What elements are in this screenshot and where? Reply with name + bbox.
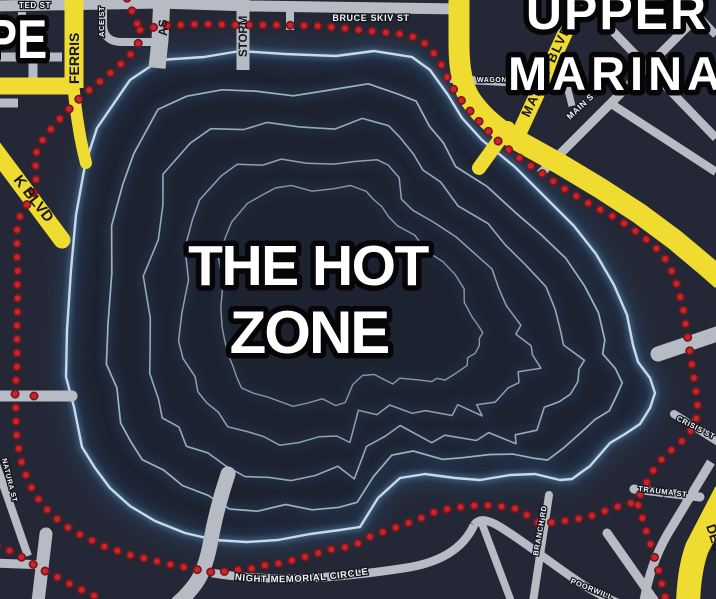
svg-text:MARINA: MARINA [508, 47, 716, 100]
svg-text:BRUCE SKIV ST: BRUCE SKIV ST [332, 13, 409, 23]
svg-text:ACE ST: ACE ST [97, 6, 106, 37]
svg-text:STORM: STORM [238, 16, 250, 57]
svg-text:AS: AS [156, 19, 170, 36]
svg-text:FERRIS: FERRIS [66, 33, 82, 84]
svg-text:UPPER: UPPER [526, 0, 708, 40]
svg-text:THE HOT: THE HOT [188, 234, 429, 298]
svg-text:PE: PE [0, 8, 47, 70]
svg-text:ZONE: ZONE [230, 299, 389, 366]
svg-text:WAGON: WAGON [477, 77, 507, 84]
